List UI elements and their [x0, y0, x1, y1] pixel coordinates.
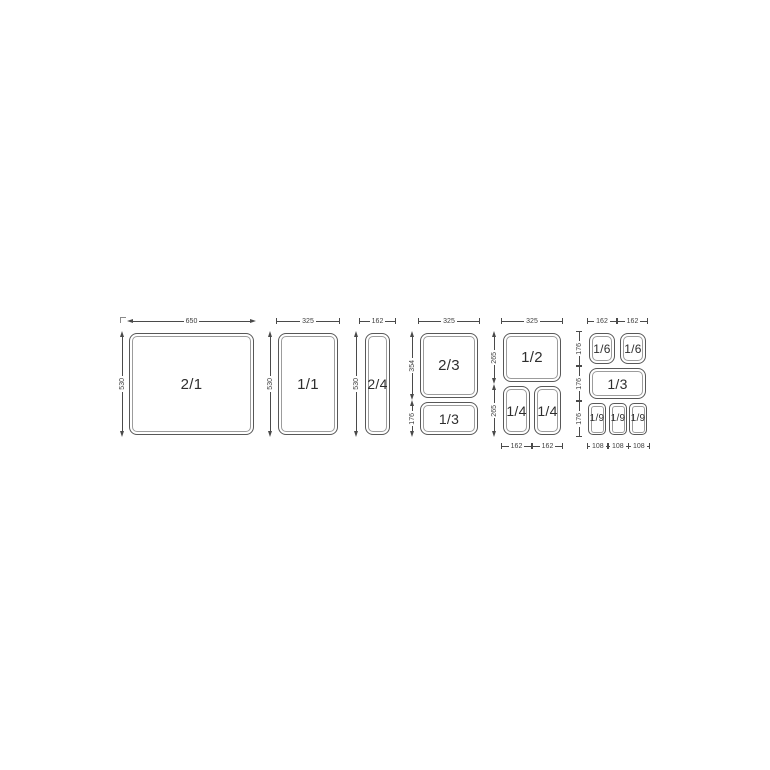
dim-label: 162 [594, 318, 610, 325]
dim-tick [562, 443, 563, 449]
dim-tick [395, 318, 396, 324]
pan-label: 2/3 [438, 358, 460, 373]
pan-1-9: 1/9 [609, 403, 627, 435]
dim-line [457, 321, 479, 322]
dim-line [502, 446, 509, 447]
pan-1-9: 1/9 [629, 403, 647, 435]
dim-tick [649, 443, 650, 449]
dim-line [494, 390, 495, 403]
pan-label: 1/9 [631, 414, 646, 424]
dim-label: 325 [524, 318, 540, 325]
dim-width-1-6: 162 [587, 316, 617, 326]
dim-line [579, 391, 580, 400]
dim-line [419, 321, 441, 322]
dim-line [494, 365, 495, 378]
dim-label: 530 [267, 376, 274, 392]
dim-width-1-9: 108 [607, 441, 628, 451]
dim-line [122, 337, 123, 376]
pan-label: 1/6 [624, 343, 642, 355]
dim-line [579, 367, 580, 376]
dim-label: 108 [610, 443, 626, 450]
dim-line [579, 427, 580, 436]
dim-line [122, 392, 123, 431]
dim-label: 162 [625, 318, 641, 325]
pan-label: 1/9 [611, 414, 626, 424]
dim-label: 162 [540, 443, 556, 450]
pan-label: 1/4 [506, 404, 526, 418]
dim-label: 265 [491, 350, 498, 366]
dim-line [199, 321, 250, 322]
pan-1-1: 1/1 [278, 333, 338, 435]
pan-1-4: 1/4 [534, 386, 561, 435]
dim-width-2-3: 325 [418, 316, 480, 326]
dim-line [579, 402, 580, 411]
dim-line [640, 321, 647, 322]
pan-1-3: 1/3 [589, 368, 646, 399]
dim-label: 325 [441, 318, 457, 325]
dim-height-2-3: 354 [406, 331, 418, 400]
dim-height-1-3: 176 [406, 400, 418, 437]
dim-height-2-1: 530 [116, 331, 128, 437]
dim-height-1-3: 176 [573, 366, 585, 401]
dim-height-1-4: 265 [488, 384, 500, 437]
arrow-down-icon [120, 431, 124, 437]
dim-height-1-1: 530 [264, 331, 276, 437]
dim-line [360, 321, 370, 322]
pan-label: 2/1 [181, 377, 203, 392]
arrow-right-icon [250, 319, 256, 323]
dim-line [412, 373, 413, 394]
pan-1-6: 1/6 [620, 333, 646, 364]
pan-1-6: 1/6 [589, 333, 615, 364]
pan-1-9: 1/9 [588, 403, 606, 435]
dim-line [555, 446, 562, 447]
arrow-down-icon [410, 431, 414, 437]
pan-1-4: 1/4 [503, 386, 530, 435]
dim-width-1-4: 162 [532, 441, 563, 451]
dim-label: 650 [184, 318, 200, 325]
dim-tick [479, 318, 480, 324]
gn-pan-size-diagram: 650 530 2/1 325 530 [0, 0, 770, 770]
pan-label: 1/2 [521, 350, 543, 365]
dim-height-1-9: 176 [573, 401, 585, 437]
dim-label: 530 [353, 376, 360, 392]
pan-label: 1/1 [297, 377, 319, 392]
dim-line [316, 321, 339, 322]
dim-line [356, 337, 357, 376]
pan-2-4: 2/4 [365, 333, 390, 435]
dim-label: 176 [576, 376, 583, 392]
dim-width-2-1: 650 [127, 316, 256, 326]
dim-line [494, 418, 495, 431]
pan-label: 2/4 [367, 377, 387, 391]
dim-line [579, 332, 580, 341]
dim-tick [576, 436, 582, 437]
extension-corner-tick [120, 317, 126, 323]
dim-line [385, 321, 395, 322]
arrow-down-icon [492, 431, 496, 437]
dim-width-1-4: 162 [501, 441, 532, 451]
dim-tick [339, 318, 340, 324]
dim-width-1-2: 325 [501, 316, 563, 326]
pan-label: 1/3 [607, 377, 627, 391]
pan-label: 1/9 [590, 414, 605, 424]
arrow-down-icon [354, 431, 358, 437]
dim-label: 176 [576, 411, 583, 427]
dim-tick [647, 318, 648, 324]
dim-line [502, 321, 524, 322]
dim-line [579, 356, 580, 365]
dim-label: 176 [409, 411, 416, 427]
canvas: 650 530 2/1 325 530 [0, 0, 770, 770]
dim-label: 108 [590, 443, 606, 450]
dim-line [524, 446, 531, 447]
dim-line [412, 337, 413, 358]
dim-label: 265 [491, 403, 498, 419]
dim-width-1-9: 108 [587, 441, 607, 451]
dim-line [270, 337, 271, 376]
dim-label: 108 [631, 443, 647, 450]
dim-line [533, 446, 540, 447]
dim-line [412, 406, 413, 411]
pan-label: 1/4 [537, 404, 557, 418]
dim-height-2-4: 530 [350, 331, 362, 437]
dim-label: 354 [409, 358, 416, 374]
pan-2-1: 2/1 [129, 333, 254, 435]
dim-label: 530 [119, 376, 126, 392]
dim-tick [562, 318, 563, 324]
pan-2-3: 2/3 [420, 333, 478, 398]
dim-height-1-2: 265 [488, 331, 500, 384]
dim-line [540, 321, 562, 322]
pan-1-2: 1/2 [503, 333, 561, 382]
pan-label: 1/3 [439, 412, 459, 426]
pan-1-3: 1/3 [420, 402, 478, 435]
dim-line [618, 321, 625, 322]
pan-label: 1/6 [593, 343, 611, 355]
dim-line [133, 321, 184, 322]
dim-label: 162 [370, 318, 386, 325]
dim-width-2-4: 162 [359, 316, 396, 326]
dim-width-1-6: 162 [617, 316, 648, 326]
dim-height-1-6: 176 [573, 331, 585, 366]
dim-width-1-1: 325 [276, 316, 340, 326]
dim-label: 325 [300, 318, 316, 325]
dim-width-1-9: 108 [628, 441, 648, 451]
dim-label: 176 [576, 341, 583, 357]
dim-line [270, 392, 271, 431]
dim-line [277, 321, 300, 322]
arrow-down-icon [268, 431, 272, 437]
dim-label: 162 [509, 443, 525, 450]
dim-line [356, 392, 357, 431]
dim-line [494, 337, 495, 350]
